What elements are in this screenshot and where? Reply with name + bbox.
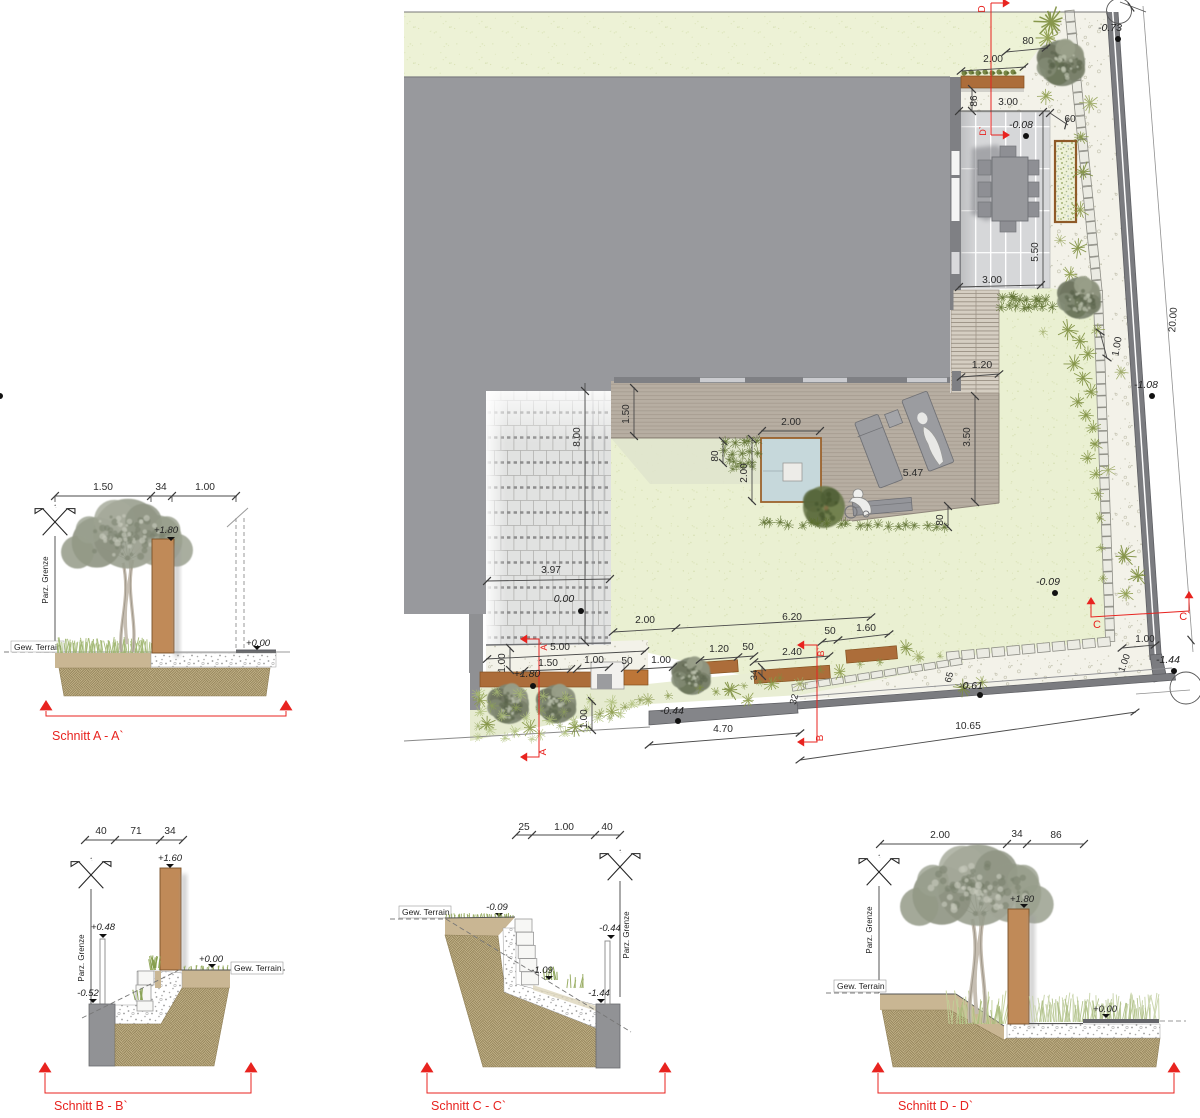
svg-text:20.00: 20.00 (1167, 307, 1180, 333)
svg-text:C: C (1093, 619, 1101, 631)
svg-text:3.00: 3.00 (982, 275, 1002, 286)
svg-text:+1.80: +1.80 (154, 525, 179, 536)
svg-text:1.00: 1.00 (584, 655, 604, 666)
svg-text:86: 86 (1050, 830, 1062, 841)
svg-text:+1.80: +1.80 (1010, 894, 1035, 905)
svg-text:Schnitt C - C`: Schnitt C - C` (431, 1099, 506, 1113)
svg-text:Schnitt D - D`: Schnitt D - D` (898, 1099, 973, 1113)
svg-text:Parz. Grenze: Parz. Grenze (77, 934, 86, 982)
svg-text:34: 34 (749, 670, 760, 681)
svg-text:-0.61: -0.61 (959, 680, 983, 692)
svg-text:8.00: 8.00 (572, 427, 583, 447)
svg-text:A: A (538, 748, 549, 755)
svg-text:2.00: 2.00 (983, 54, 1003, 65)
svg-text:-1.08: -1.08 (1134, 379, 1158, 391)
svg-text:4.70: 4.70 (713, 724, 733, 735)
svg-text:34: 34 (155, 482, 167, 493)
svg-text:1.20: 1.20 (709, 644, 729, 655)
svg-text:80: 80 (710, 450, 721, 462)
svg-text:1.00: 1.00 (554, 822, 574, 833)
svg-text:-1.44: -1.44 (588, 988, 610, 999)
svg-text:5.00: 5.00 (550, 642, 570, 653)
svg-text:+1.60: +1.60 (158, 853, 183, 864)
svg-text:Parz. Grenze: Parz. Grenze (41, 556, 50, 604)
svg-text:1.00: 1.00 (579, 709, 590, 729)
svg-text:Gew. Terrain: Gew. Terrain (402, 907, 450, 917)
svg-text:2.00: 2.00 (781, 417, 801, 428)
svg-text:34: 34 (164, 826, 176, 837)
svg-text:40: 40 (601, 822, 613, 833)
svg-text:34: 34 (1011, 829, 1023, 840)
svg-text:-1.09: -1.09 (531, 965, 553, 976)
svg-text:+0.00: +0.00 (199, 954, 224, 965)
svg-text:0.00: 0.00 (554, 593, 575, 605)
svg-text:71: 71 (130, 826, 142, 837)
svg-text:Schnitt B - B`: Schnitt B - B` (54, 1099, 128, 1113)
svg-text:6.20: 6.20 (782, 612, 802, 623)
svg-text:1.20: 1.20 (972, 359, 993, 371)
svg-text:60: 60 (1064, 114, 1076, 125)
svg-text:3.00: 3.00 (998, 97, 1018, 108)
svg-text:2.00: 2.00 (635, 615, 655, 626)
svg-text:-0.09: -0.09 (486, 902, 508, 913)
svg-text:1.00: 1.00 (195, 482, 215, 493)
svg-text:1.50: 1.50 (621, 404, 632, 424)
svg-text:Parz. Grenze: Parz. Grenze (865, 906, 874, 954)
svg-text:B: B (815, 734, 826, 741)
svg-text:40: 40 (95, 826, 107, 837)
svg-text:2.00: 2.00 (739, 463, 750, 483)
svg-text:1.00: 1.00 (1135, 634, 1155, 645)
svg-text:A`: A` (539, 641, 549, 650)
svg-text:-0.08: -0.08 (1009, 119, 1033, 131)
svg-text:1.00: 1.00 (497, 653, 508, 673)
svg-text:-0.44: -0.44 (660, 705, 684, 717)
svg-text:+0.48: +0.48 (91, 922, 116, 933)
svg-text:1.50: 1.50 (93, 482, 113, 493)
svg-text:-0.09: -0.09 (1036, 576, 1060, 588)
svg-text:B`: B` (816, 647, 826, 656)
svg-text:5.50: 5.50 (1030, 242, 1041, 262)
svg-text:C`: C` (1179, 611, 1191, 623)
svg-text:80: 80 (935, 514, 946, 526)
svg-text:1.00: 1.00 (651, 655, 671, 666)
svg-text:2.40: 2.40 (782, 647, 802, 658)
svg-text:25: 25 (518, 822, 530, 833)
svg-text:50: 50 (742, 642, 754, 653)
svg-text:-0.73: -0.73 (1098, 22, 1122, 34)
svg-text:5.47: 5.47 (903, 467, 924, 479)
svg-text:Gew. Terrain: Gew. Terrain (234, 963, 282, 973)
svg-text:Parz. Grenze: Parz. Grenze (622, 911, 631, 959)
svg-text:Gew. Terrain: Gew. Terrain (14, 642, 62, 652)
svg-text:+0.00: +0.00 (1093, 1004, 1118, 1015)
svg-text:3.50: 3.50 (962, 427, 973, 447)
svg-text:Schnitt A - A`: Schnitt A - A` (52, 729, 124, 743)
svg-text:80: 80 (1022, 36, 1034, 47)
svg-text:50: 50 (824, 626, 836, 637)
svg-text:3.97: 3.97 (541, 565, 561, 576)
svg-text:-0.44: -0.44 (599, 923, 621, 934)
svg-text:2.00: 2.00 (930, 830, 950, 841)
svg-text:-1.44: -1.44 (1156, 654, 1180, 666)
svg-text:D`: D` (978, 126, 988, 136)
svg-text:D: D (977, 5, 988, 12)
svg-text:50: 50 (621, 656, 633, 667)
svg-text:1.50: 1.50 (538, 658, 558, 669)
svg-text:-0.52: -0.52 (77, 988, 99, 999)
svg-text:1.60: 1.60 (856, 623, 876, 634)
svg-text:Gew. Terrain: Gew. Terrain (837, 981, 885, 991)
svg-text:86: 86 (969, 95, 980, 107)
svg-text:10.65: 10.65 (955, 721, 981, 732)
svg-text:+1.80: +1.80 (514, 668, 541, 680)
